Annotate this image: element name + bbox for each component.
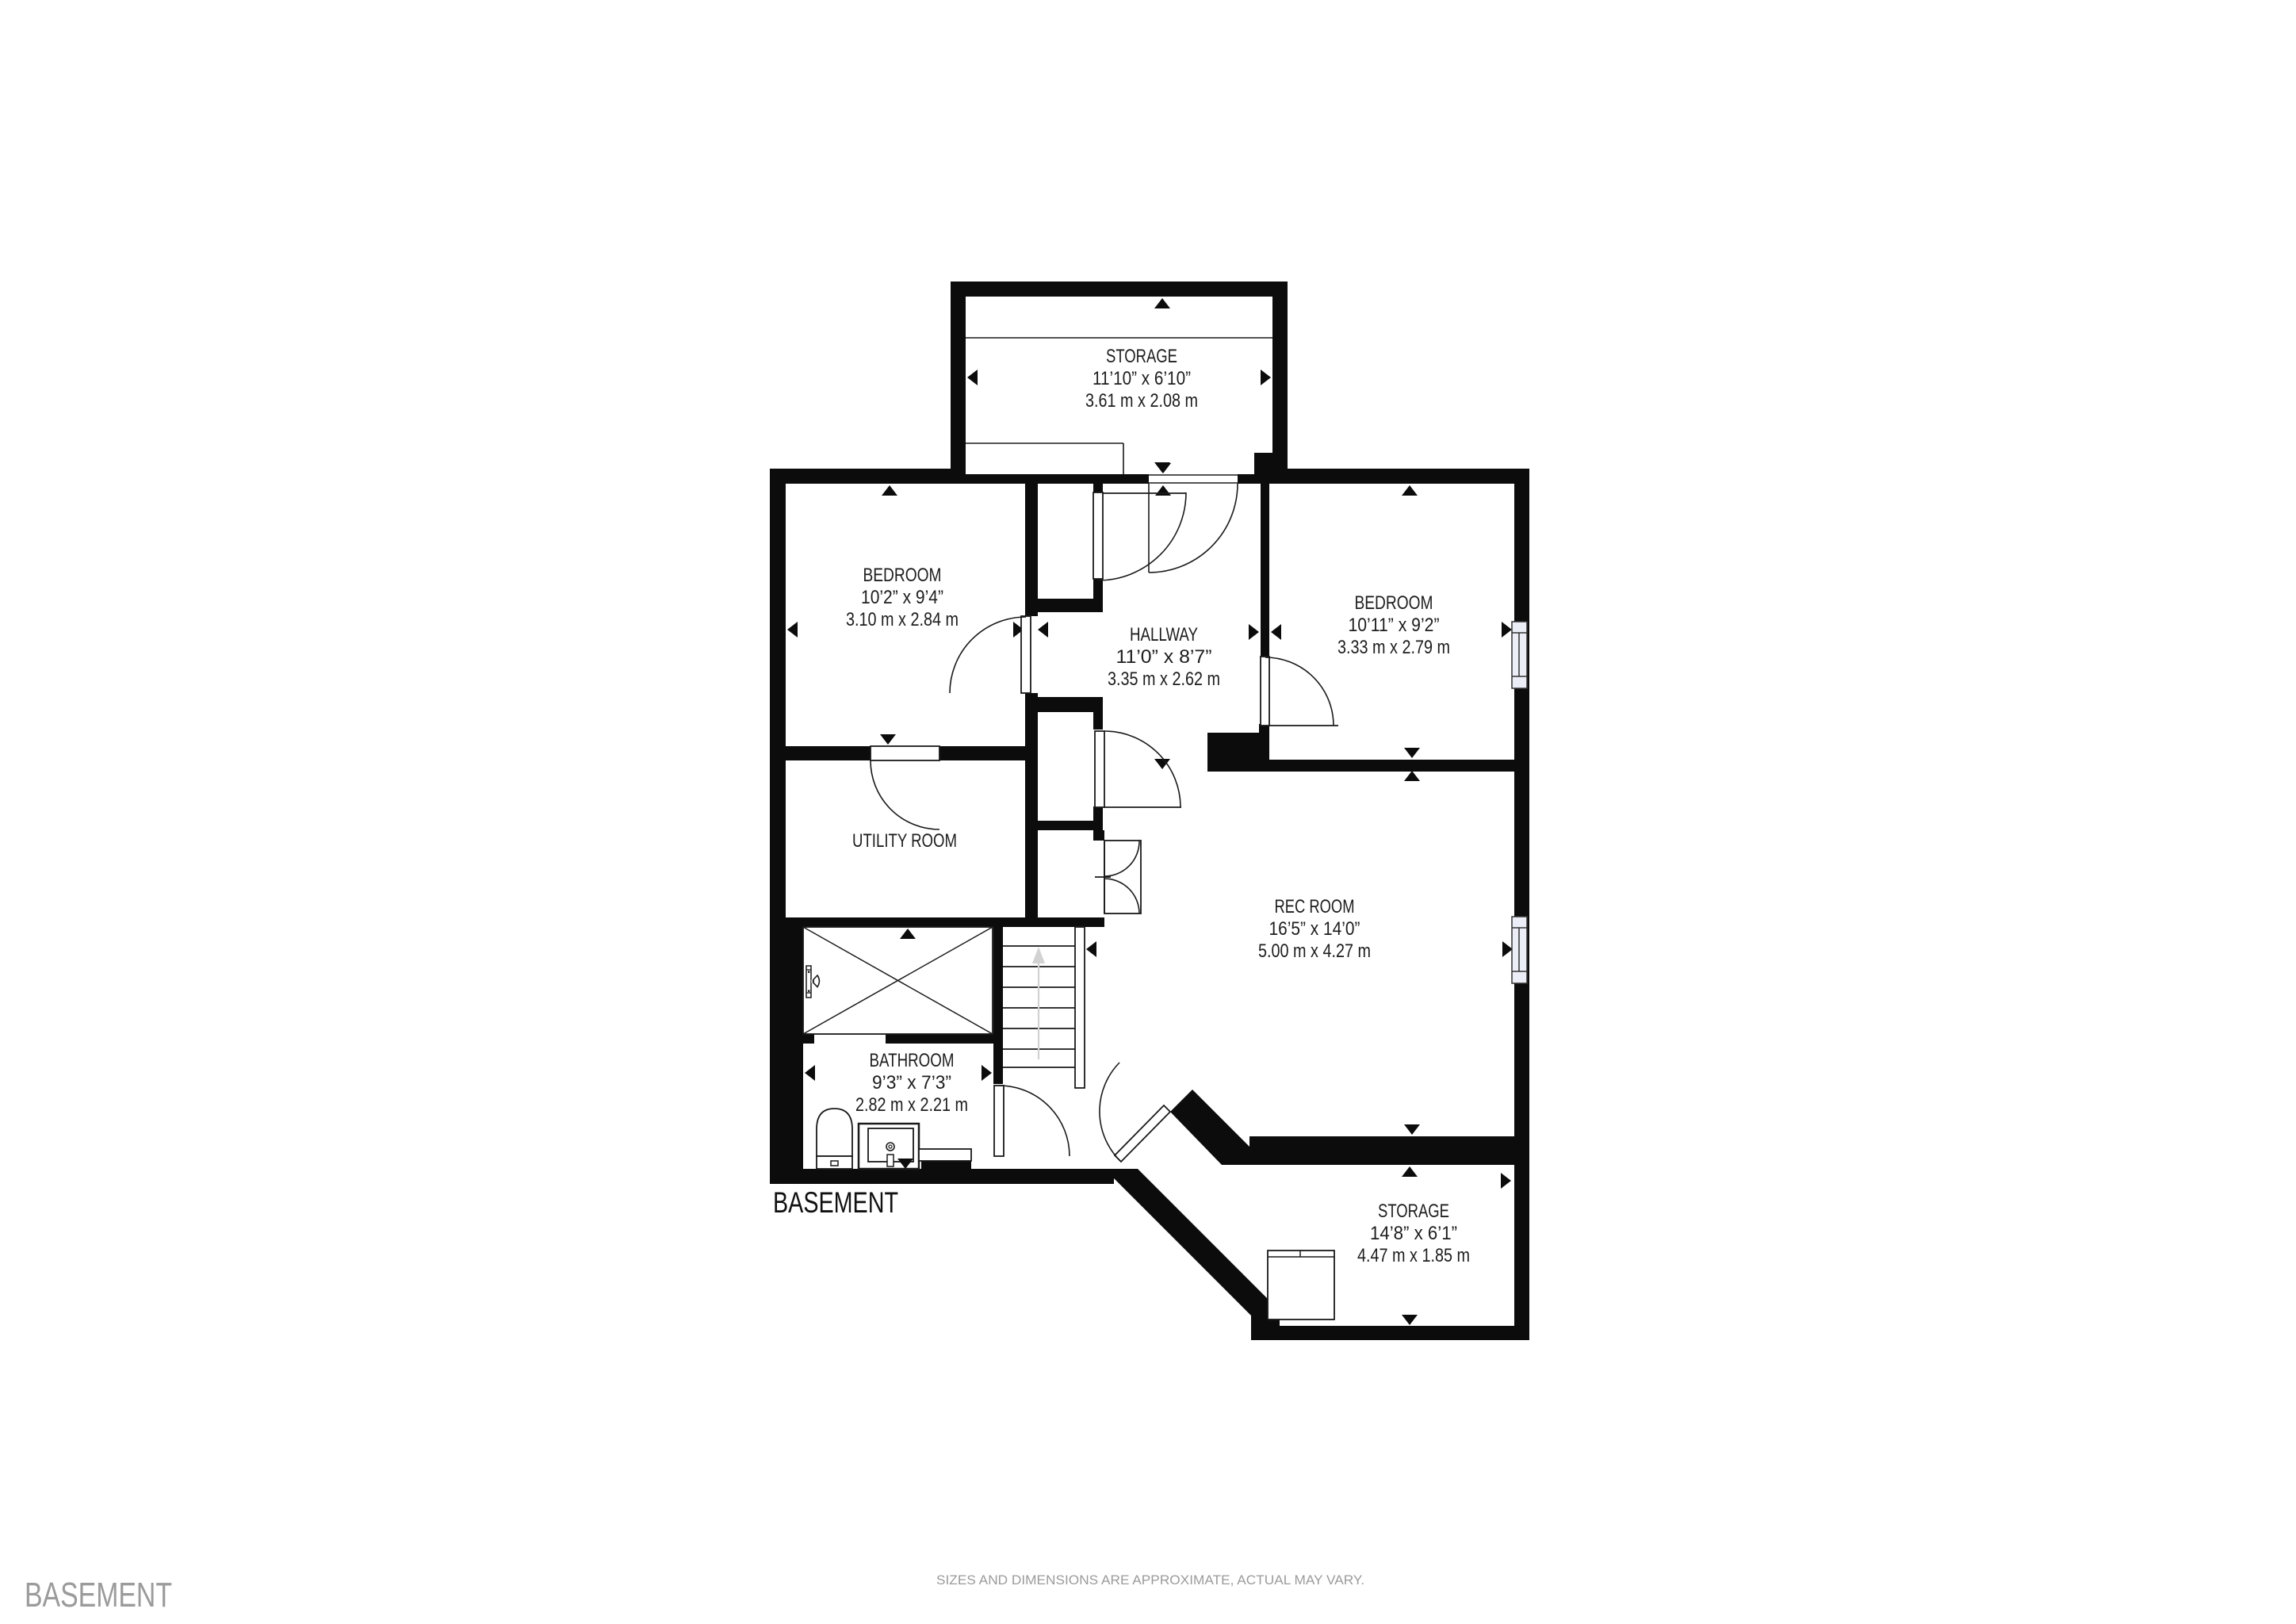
svg-text:3.35 m x 2.62 m: 3.35 m x 2.62 m (1108, 668, 1220, 690)
svg-text:9’3” x 7’3”: 9’3” x 7’3” (872, 1072, 951, 1094)
svg-text:BEDROOM: BEDROOM (1355, 592, 1433, 614)
svg-text:REC ROOM: REC ROOM (1275, 896, 1355, 917)
svg-text:BEDROOM: BEDROOM (863, 565, 942, 586)
svg-text:STORAGE: STORAGE (1106, 346, 1177, 367)
svg-text:BASEMENT: BASEMENT (25, 1576, 172, 1614)
svg-text:STORAGE: STORAGE (1378, 1201, 1449, 1222)
svg-text:11’0” x 8’7”: 11’0” x 8’7” (1116, 646, 1212, 668)
svg-text:4.47 m x 1.85 m: 4.47 m x 1.85 m (1357, 1245, 1470, 1266)
svg-text:UTILITY ROOM: UTILITY ROOM (852, 830, 957, 852)
svg-text:BASEMENT: BASEMENT (773, 1186, 898, 1219)
svg-text:HALLWAY: HALLWAY (1130, 624, 1198, 645)
svg-text:5.00 m x 4.27 m: 5.00 m x 4.27 m (1258, 940, 1371, 962)
svg-text:BATHROOM: BATHROOM (870, 1050, 955, 1071)
svg-text:11’10” x 6’10”: 11’10” x 6’10” (1093, 368, 1191, 389)
svg-text:16’5” x 14’0”: 16’5” x 14’0” (1269, 918, 1360, 940)
svg-text:3.10 m x 2.84 m: 3.10 m x 2.84 m (846, 609, 959, 630)
svg-text:3.61 m x 2.08 m: 3.61 m x 2.08 m (1085, 390, 1198, 412)
svg-text:10’11” x 9’2”: 10’11” x 9’2” (1349, 615, 1440, 636)
svg-text:2.82 m x 2.21 m: 2.82 m x 2.21 m (855, 1094, 968, 1116)
svg-text:SIZES AND DIMENSIONS ARE APPRO: SIZES AND DIMENSIONS ARE APPROXIMATE, AC… (936, 1572, 1364, 1588)
svg-text:3.33 m x 2.79 m: 3.33 m x 2.79 m (1337, 637, 1450, 658)
svg-text:14’8” x 6’1”: 14’8” x 6’1” (1370, 1223, 1457, 1244)
svg-text:10’2” x 9’4”: 10’2” x 9’4” (861, 587, 943, 608)
